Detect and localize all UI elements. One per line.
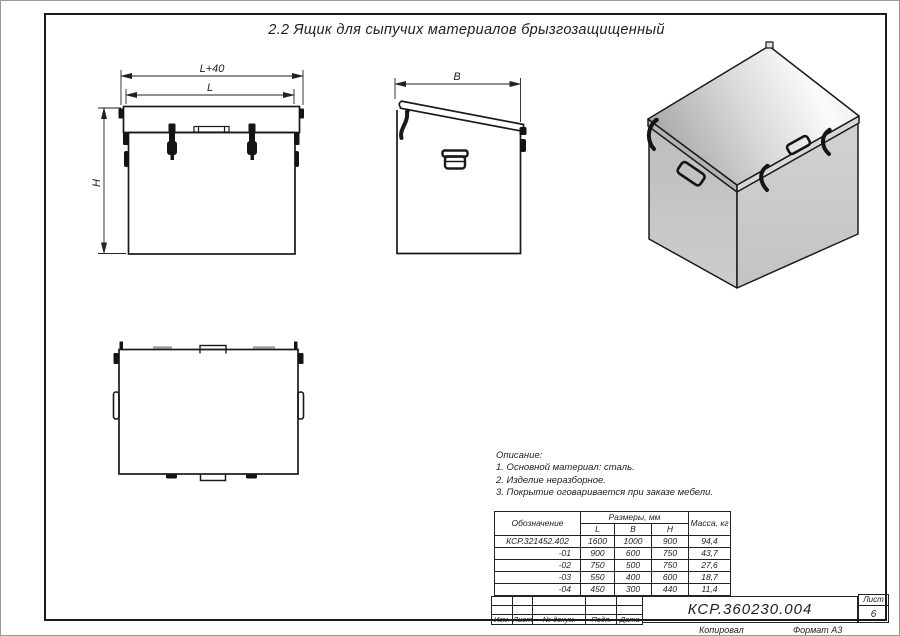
dim-label-h: H (91, 179, 103, 187)
label-podp: Подп. (586, 615, 617, 625)
description-line: 3. Покрытие оговаривается при заказе меб… (496, 487, 713, 499)
cell-h: 900 (652, 536, 689, 548)
plan-view (114, 342, 304, 481)
table-row: КСР.321452.402 1600 1000 900 94,4 (495, 536, 731, 548)
cell-b: 400 (615, 572, 652, 584)
side-view (397, 101, 527, 253)
front-latches (167, 124, 257, 161)
dim-label-l: L (207, 82, 213, 94)
table-row: -02 750 500 750 27,6 (495, 560, 731, 572)
dimensions-table: Обозначение Размеры, мм Масса, кг L B H … (494, 511, 731, 596)
side-dimensions (395, 78, 521, 122)
footer-format: Формат А3 (793, 625, 842, 635)
cell-l: 1600 (581, 536, 615, 548)
document-number: КСР.360230.004 (642, 596, 858, 623)
cell-l: 550 (581, 572, 615, 584)
col-header-l: L (581, 524, 615, 536)
cell-b: 1000 (615, 536, 652, 548)
sheet-cell: Лист 6 (858, 594, 889, 623)
cell-l: 900 (581, 548, 615, 560)
cell-mass: 11,4 (689, 584, 731, 596)
isometric-view (648, 42, 859, 288)
sheet-label: Лист (859, 595, 888, 606)
cell-mass: 43,7 (689, 548, 731, 560)
front-view (119, 107, 305, 255)
label-data: Дата (617, 615, 643, 625)
description-line: 2. Изделие неразборное. (496, 475, 713, 487)
description-heading: Описание: (496, 450, 713, 462)
cell-h: 440 (652, 584, 689, 596)
col-header-designation: Обозначение (495, 512, 581, 536)
sheet-number: 6 (859, 606, 888, 623)
cell-b: 500 (615, 560, 652, 572)
cell-l: 450 (581, 584, 615, 596)
col-header-b: B (615, 524, 652, 536)
cell-designation: -03 (495, 572, 581, 584)
cell-l: 750 (581, 560, 615, 572)
dim-label-l40: L+40 (200, 63, 226, 75)
front-side-fittings (119, 109, 305, 168)
table-row: -01 900 600 750 43,7 (495, 548, 731, 560)
description-line: 1. Основной материал: сталь. (496, 462, 713, 474)
label-izm: Изм. (492, 615, 513, 625)
cell-b: 600 (615, 548, 652, 560)
title-block-revision-strip: Изм. Лист № докум. Подп. Дата (491, 596, 643, 625)
cell-designation: КСР.321452.402 (495, 536, 581, 548)
cell-b: 300 (615, 584, 652, 596)
footer-kopiroval: Копировал (699, 625, 744, 635)
cell-h: 750 (652, 560, 689, 572)
cell-mass: 94,4 (689, 536, 731, 548)
cell-h: 750 (652, 548, 689, 560)
col-header-mass: Масса, кг (689, 512, 731, 536)
description-notes: Описание: 1. Основной материал: сталь. 2… (496, 450, 713, 499)
label-list: Лист (513, 615, 533, 625)
drawing-canvas: L+40 L H (1, 1, 899, 635)
cell-designation: -01 (495, 548, 581, 560)
col-header-sizes: Размеры, мм (581, 512, 689, 524)
label-doc: № докум. (533, 615, 586, 625)
table-row: -03 550 400 600 18,7 (495, 572, 731, 584)
table-row: -04 450 300 440 11,4 (495, 584, 731, 596)
cell-designation: -04 (495, 584, 581, 596)
cell-mass: 18,7 (689, 572, 731, 584)
cell-mass: 27,6 (689, 560, 731, 572)
col-header-h: H (652, 524, 689, 536)
dim-label-b: B (453, 71, 460, 83)
cell-designation: -02 (495, 560, 581, 572)
cell-h: 600 (652, 572, 689, 584)
drawing-sheet: 2.2 Ящик для сыпучих материалов брызгоза… (0, 0, 900, 636)
